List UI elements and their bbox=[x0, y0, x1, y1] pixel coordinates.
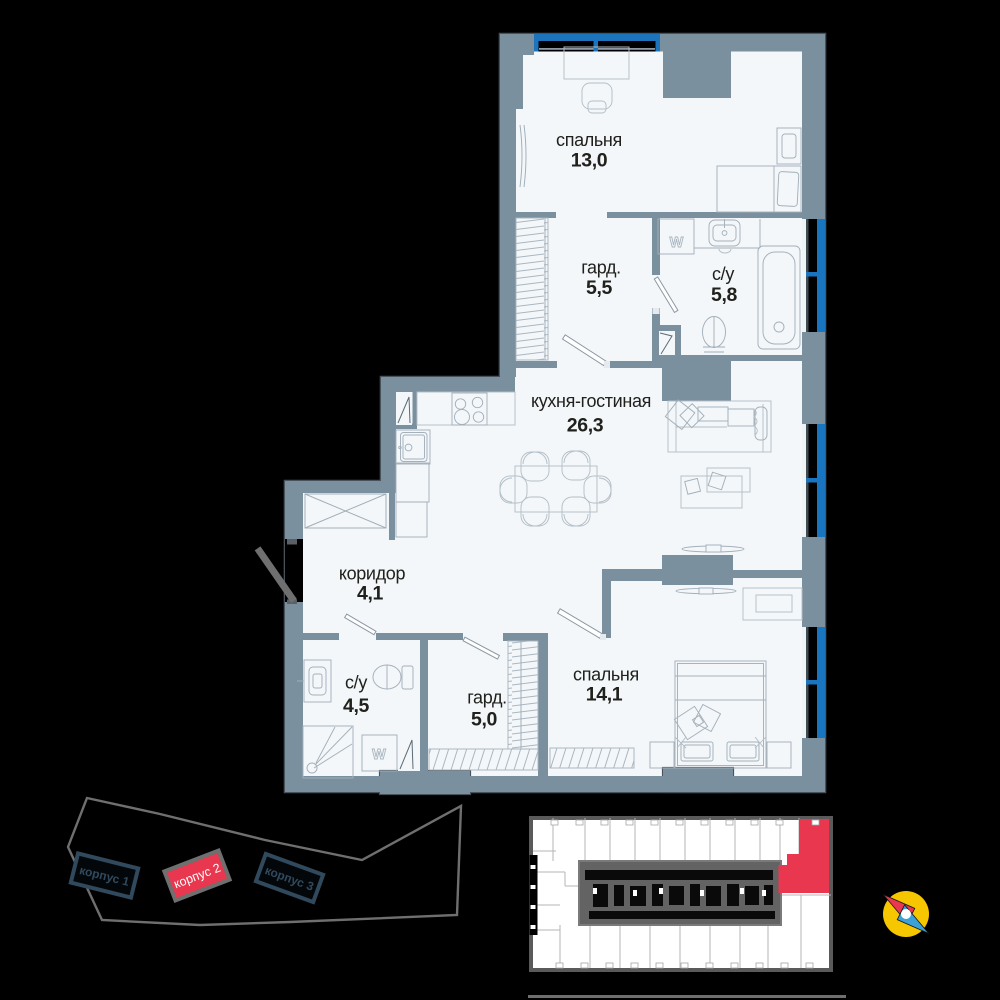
svg-text:гард.: гард. bbox=[581, 258, 621, 278]
svg-text:спальня: спальня bbox=[573, 665, 639, 685]
svg-text:4,5: 4,5 bbox=[343, 695, 370, 717]
svg-text:гард.: гард. bbox=[467, 688, 507, 708]
svg-text:спальня: спальня bbox=[556, 130, 622, 150]
svg-text:кухня-гостиная: кухня-гостиная bbox=[531, 391, 651, 411]
svg-text:W: W bbox=[372, 747, 386, 763]
svg-text:5,5: 5,5 bbox=[586, 277, 613, 299]
svg-text:26,3: 26,3 bbox=[567, 415, 604, 437]
svg-text:W: W bbox=[670, 235, 684, 251]
svg-text:14,1: 14,1 bbox=[586, 684, 623, 706]
svg-text:коридор: коридор bbox=[339, 564, 406, 584]
svg-text:5,0: 5,0 bbox=[471, 709, 498, 731]
svg-text:с/у: с/у bbox=[712, 264, 734, 284]
svg-text:5,8: 5,8 bbox=[711, 284, 738, 306]
svg-text:13,0: 13,0 bbox=[571, 150, 608, 172]
svg-text:4,1: 4,1 bbox=[357, 583, 384, 605]
svg-text:с/у: с/у bbox=[345, 673, 367, 693]
